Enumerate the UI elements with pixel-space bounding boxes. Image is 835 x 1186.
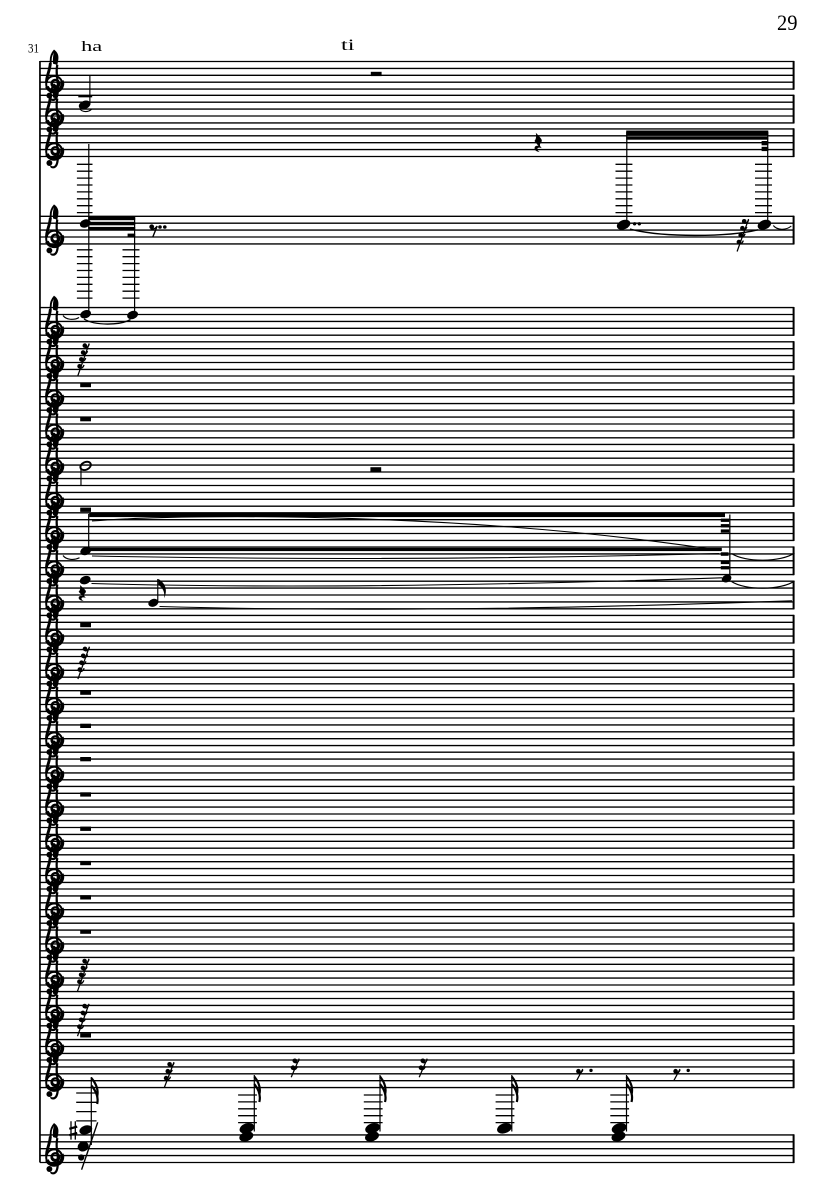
svg-text:ha: ha <box>81 39 102 55</box>
svg-text:29: 29 <box>777 10 798 35</box>
svg-text:31: 31 <box>28 41 39 55</box>
svg-text:ti: ti <box>341 37 355 54</box>
